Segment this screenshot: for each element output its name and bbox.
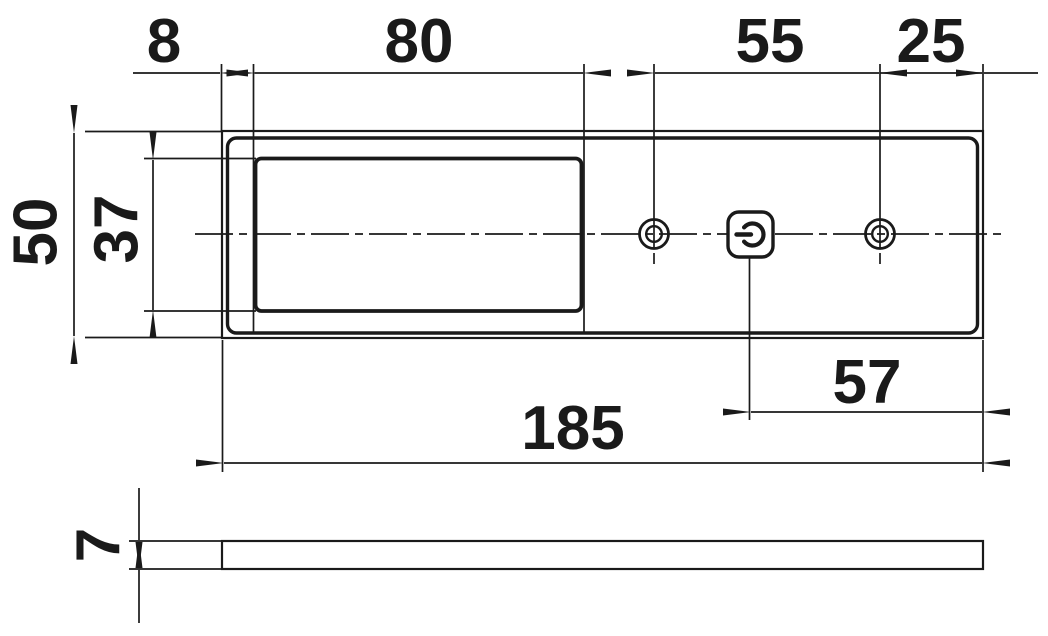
dim-label-25: 25	[897, 7, 966, 76]
dim-label-8: 8	[147, 7, 181, 76]
dim-label-185: 185	[521, 394, 624, 463]
dim-label-37: 37	[83, 195, 152, 264]
side-view	[129, 488, 983, 623]
dim-label-80: 80	[385, 7, 454, 76]
dim-label-55: 55	[736, 7, 805, 76]
dim-label-57: 57	[833, 348, 902, 417]
dim-label-7: 7	[65, 528, 134, 562]
power-switch	[728, 212, 773, 257]
screw-hole-right	[866, 220, 895, 265]
side-view-bar	[222, 541, 983, 569]
technical-drawing: 8 80 55 25 57 185 50 37 7	[0, 0, 1048, 636]
dim-label-50: 50	[2, 198, 71, 267]
screw-hole-left	[640, 220, 669, 265]
drawing-canvas: 8 80 55 25 57 185 50 37 7	[0, 0, 1048, 636]
